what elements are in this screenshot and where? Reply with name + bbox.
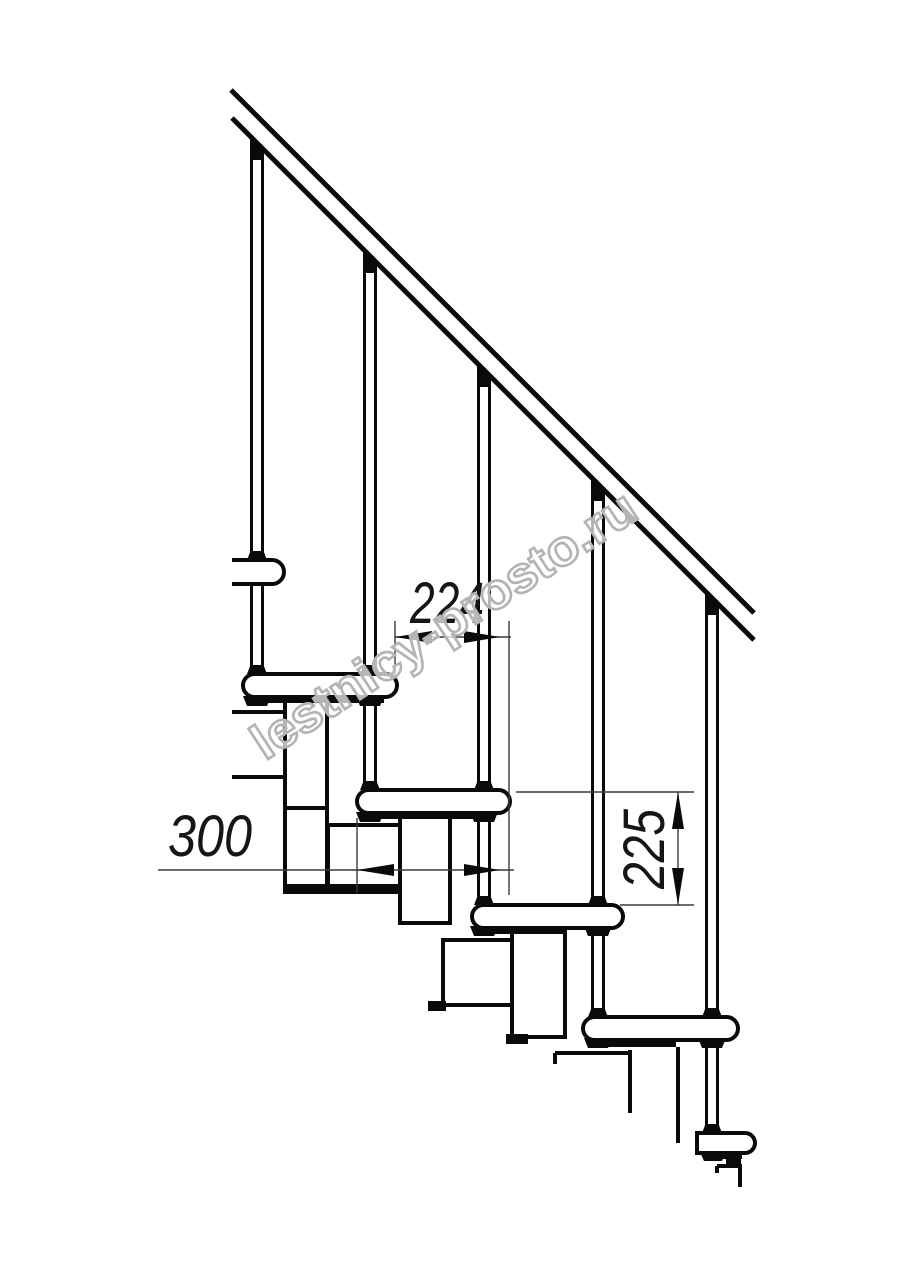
staircase-elevation-svg: 224 300 225 lestnicy-prosto.ru <box>0 0 914 1280</box>
module-blocks <box>232 699 740 1187</box>
tread-2 <box>357 790 510 813</box>
dimension-value-300: 300 <box>168 804 252 869</box>
watermark-text: lestnicy-prosto.ru <box>241 479 647 770</box>
tread-4 <box>583 1017 738 1040</box>
tread-landing-stub <box>232 560 284 584</box>
tread-3 <box>472 905 623 928</box>
module-leg <box>285 808 327 886</box>
module-foot-plate <box>428 1001 446 1011</box>
module-outline-partial <box>717 1164 740 1187</box>
module-box <box>328 825 403 890</box>
arrow-right <box>464 864 500 876</box>
handrail <box>231 90 754 640</box>
dimension-value-225: 225 <box>612 808 677 889</box>
handrail-top-line <box>231 90 754 613</box>
technical-drawing-staircase: 224 300 225 lestnicy-prosto.ru <box>0 0 914 1280</box>
baluster-5 <box>702 594 722 1133</box>
module-foot-plate <box>506 1034 528 1044</box>
module-foot-plate <box>283 884 403 894</box>
module-outline-partial <box>555 1050 630 1113</box>
tread-5 <box>697 1133 755 1153</box>
baluster-1 <box>247 139 267 674</box>
module-box <box>443 940 517 1005</box>
module-box <box>512 931 565 1037</box>
